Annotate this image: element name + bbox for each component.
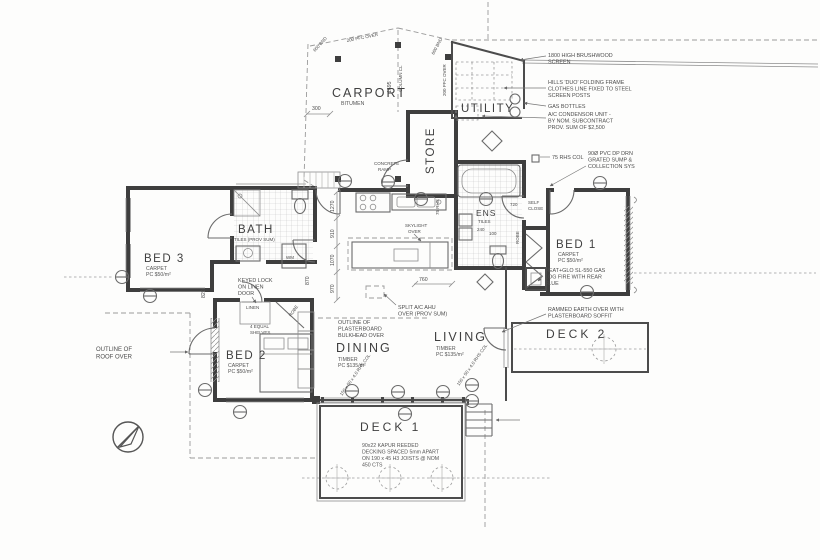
split-ac-dashed-outline [366, 286, 384, 298]
dim-240: 240 [477, 227, 485, 232]
annotation-shelves-1: 4 EQUAL [250, 324, 270, 329]
annotation-clothesline-1: HILLS 'DUO' FOLDING FRAME [548, 80, 625, 86]
annotation-rhs150-2: 150 x 50 x 4.0 RHS COL [456, 343, 489, 387]
setout-lines [64, 2, 818, 530]
annotation-keyedlock-3: DOOR [238, 291, 254, 297]
room-finish-ens: TILES [478, 219, 491, 224]
skylight-dashed-outline [348, 238, 452, 270]
annotation-self-close-1: SELF [528, 200, 540, 205]
dim-100: 100 [489, 231, 497, 236]
burner [370, 204, 376, 210]
room-label-living: LIVING [434, 330, 487, 344]
room-rate-bed1: PC $50/m² [558, 258, 583, 264]
room-rate-bed2: PC $50/m² [228, 369, 253, 375]
section-marker-diamond [477, 274, 493, 290]
annotation-bnd-1: 600 BND [312, 35, 328, 52]
room-label-robe-bed1: ROBE [515, 231, 520, 244]
room-label-bed2: BED 2 [226, 350, 267, 362]
annotation-decking-1: 90x22 KAPUR REEDED [362, 443, 419, 449]
dim-820: 820 [201, 289, 207, 298]
bed1-rammed-earth-wall [624, 206, 633, 284]
room-label-dining: DINING [336, 341, 392, 355]
annotation-brushwood-2: SCREEN [548, 60, 571, 66]
carport-column [335, 56, 341, 62]
island-sink [394, 249, 418, 261]
burner [360, 204, 366, 210]
annotation-bulkhead-3: BULKHEAD OVER [338, 333, 384, 339]
dim-1695: 1695 [387, 81, 393, 93]
room-label-utility: UTILITY [461, 103, 514, 115]
annotation-roof-outline-1: OUTLINE OF [96, 347, 132, 353]
annotation-pvc-1: 90Ø PVC DP DRN [588, 151, 633, 157]
door-window-tags [116, 175, 607, 421]
annotation-ac-2: BY NOM. SUBCONTRACT [548, 119, 614, 125]
north-arrow-head [120, 426, 139, 447]
leader-split-ac [384, 294, 396, 305]
carport-column [395, 42, 401, 48]
living-deck2-glazed-door [504, 328, 508, 368]
north-arrow [113, 422, 143, 452]
burner [370, 195, 376, 201]
room-label-bed3: BED 3 [144, 253, 185, 265]
annotation-bulkhead-2: PLASTERBOARD [338, 327, 382, 333]
annotation-ramp-1: CONCRETE [374, 161, 399, 166]
bed1-door-arc [550, 190, 574, 214]
annotation-splitac-2: OVER (PROV SUM) [398, 312, 447, 318]
island-bench [352, 242, 448, 268]
carport-column [395, 176, 401, 182]
annotation-clothesline-3: SCREEN POSTS [548, 93, 591, 99]
annotation-decking-2: DECKING SPACED 5mm APART [362, 450, 440, 456]
room-label-bed1: BED 1 [556, 239, 597, 251]
floor-plan-page: CARPORT BITUMEN UTILITY STORE BATH TILES… [0, 0, 820, 560]
annotation-pfc-over-2: 200 PFC OVER [442, 63, 447, 96]
room-finish-bath: TILES (PROV SUM) [234, 237, 275, 242]
tag-bubbles [116, 131, 607, 421]
glazing-mullion [411, 397, 414, 403]
bed1-robe-bifold-doors [526, 234, 542, 288]
burner [360, 195, 366, 201]
dim-910: 910 [330, 229, 336, 238]
annotation-ac-1: A/C CONDENSOR UNIT - [548, 112, 611, 118]
room-label-robe-hall: ROBE [288, 304, 299, 317]
bed2-bed [260, 334, 312, 392]
annotation-column-cl: COLUMN CL [398, 65, 403, 92]
annotation-pvc-2: GRATED SUMP & [588, 158, 633, 164]
annotation-gas-bottles: GAS BOTTLES [548, 104, 586, 110]
leader-pvc [550, 166, 586, 186]
annotation-self-close-2: CLOSE [528, 206, 543, 211]
room-rate-bed3: PC $50/m² [146, 272, 171, 278]
floor-plan-drawing: CARPORT BITUMEN UTILITY STORE BATH TILES… [0, 0, 820, 560]
annotation-ramp-2: RAMP [378, 167, 391, 172]
room-label-deck1: DECK 1 [360, 420, 421, 434]
annotation-heatglo-1: HEAT+GLO SL-550 GAS [545, 268, 606, 274]
room-label-ens: ENS [476, 208, 496, 218]
annotation-decking-3: ON 190 x 45 H3 JOISTS @ NOM [362, 456, 439, 462]
rhs-column [532, 155, 539, 162]
dim-300: 300 [312, 106, 321, 112]
room-label-deck2: DECK 2 [546, 327, 607, 341]
leader-gas [524, 103, 546, 106]
annotation-ac-3: PROV. SUM OF $2,500 [548, 125, 605, 131]
clothesline [456, 62, 512, 100]
window-tag-marks [634, 197, 637, 293]
annotation-rammed-2: PLASTERBOARD SOFFIT [548, 314, 613, 320]
room-rate-living: PC $135/m² [436, 352, 464, 358]
dim-1270: 1270 [330, 200, 336, 212]
carport-column [445, 54, 451, 60]
room-label-store: STORE [425, 127, 437, 174]
dim-720: 720 [510, 202, 518, 207]
leader-brushwood [520, 56, 546, 60]
pillow [264, 338, 284, 349]
annotation-roof-outline-2: ROOF OVER [96, 355, 133, 361]
room-label-linen: LINEN [246, 305, 259, 310]
room-finish-carport: BITUMEN [341, 101, 365, 107]
bed3-door-arc [208, 214, 232, 238]
glazing-mullion [462, 397, 465, 403]
annotation-pfc-over-1: 200 PFC OVER [346, 32, 379, 43]
dim-1070: 1070 [330, 254, 336, 266]
leader-skylight [414, 234, 421, 241]
glazing-mullion [381, 397, 384, 403]
annotation-skylight-2: OVER [408, 229, 422, 234]
annotation-heatglo-2: LOG FIRE WITH REAR [545, 275, 602, 281]
section-marker-diamond [482, 131, 502, 151]
annotation-rhs75: 75 RHS [435, 199, 440, 215]
annotation-shelves-2: SHELVES [250, 330, 270, 335]
annotation-clothesline-2: CLOTHES LINE FIXED TO STEEL [548, 87, 632, 93]
annotation-heatglo-3: FLUE [545, 281, 559, 287]
room-label-carport: CARPORT [332, 86, 407, 100]
dim-760: 760 [419, 277, 428, 283]
room-label-bath: BATH [238, 224, 274, 236]
ramp-hatching [304, 172, 334, 188]
annotation-rammed-1: RAMMED EARTH OVER WITH [548, 307, 624, 313]
annotation-bnd-2: 600 BND [430, 36, 443, 55]
dim-870: 870 [305, 276, 311, 285]
entry-door-arc [316, 190, 340, 214]
annotation-decking-4: 450 CTS [362, 463, 383, 469]
annotation-keyedlock-2: ON LINEN [238, 285, 264, 291]
annotation-skylight-1: SKYLIGHT [405, 223, 428, 228]
annotation-bulkhead-1: OUTLINE OF [338, 320, 371, 326]
label-washing-machine: WM [286, 255, 294, 260]
annotation-rhs-col: 75 RHS COL [552, 155, 583, 161]
sink-bowl [397, 197, 415, 207]
footing-crosses [323, 464, 456, 492]
dim-970: 970 [330, 284, 336, 293]
annotation-splitac-1: SPLIT A/C AHU [398, 305, 436, 311]
annotation-brushwood-1: 1800 HIGH BRUSHWOOD [548, 53, 613, 59]
glazing-mullion [321, 397, 324, 403]
annotation-pvc-3: COLLECTION SYS [588, 164, 635, 170]
deck-stairs [466, 404, 492, 436]
annotation-keyedlock-1: KEYED LOCK [238, 278, 273, 284]
